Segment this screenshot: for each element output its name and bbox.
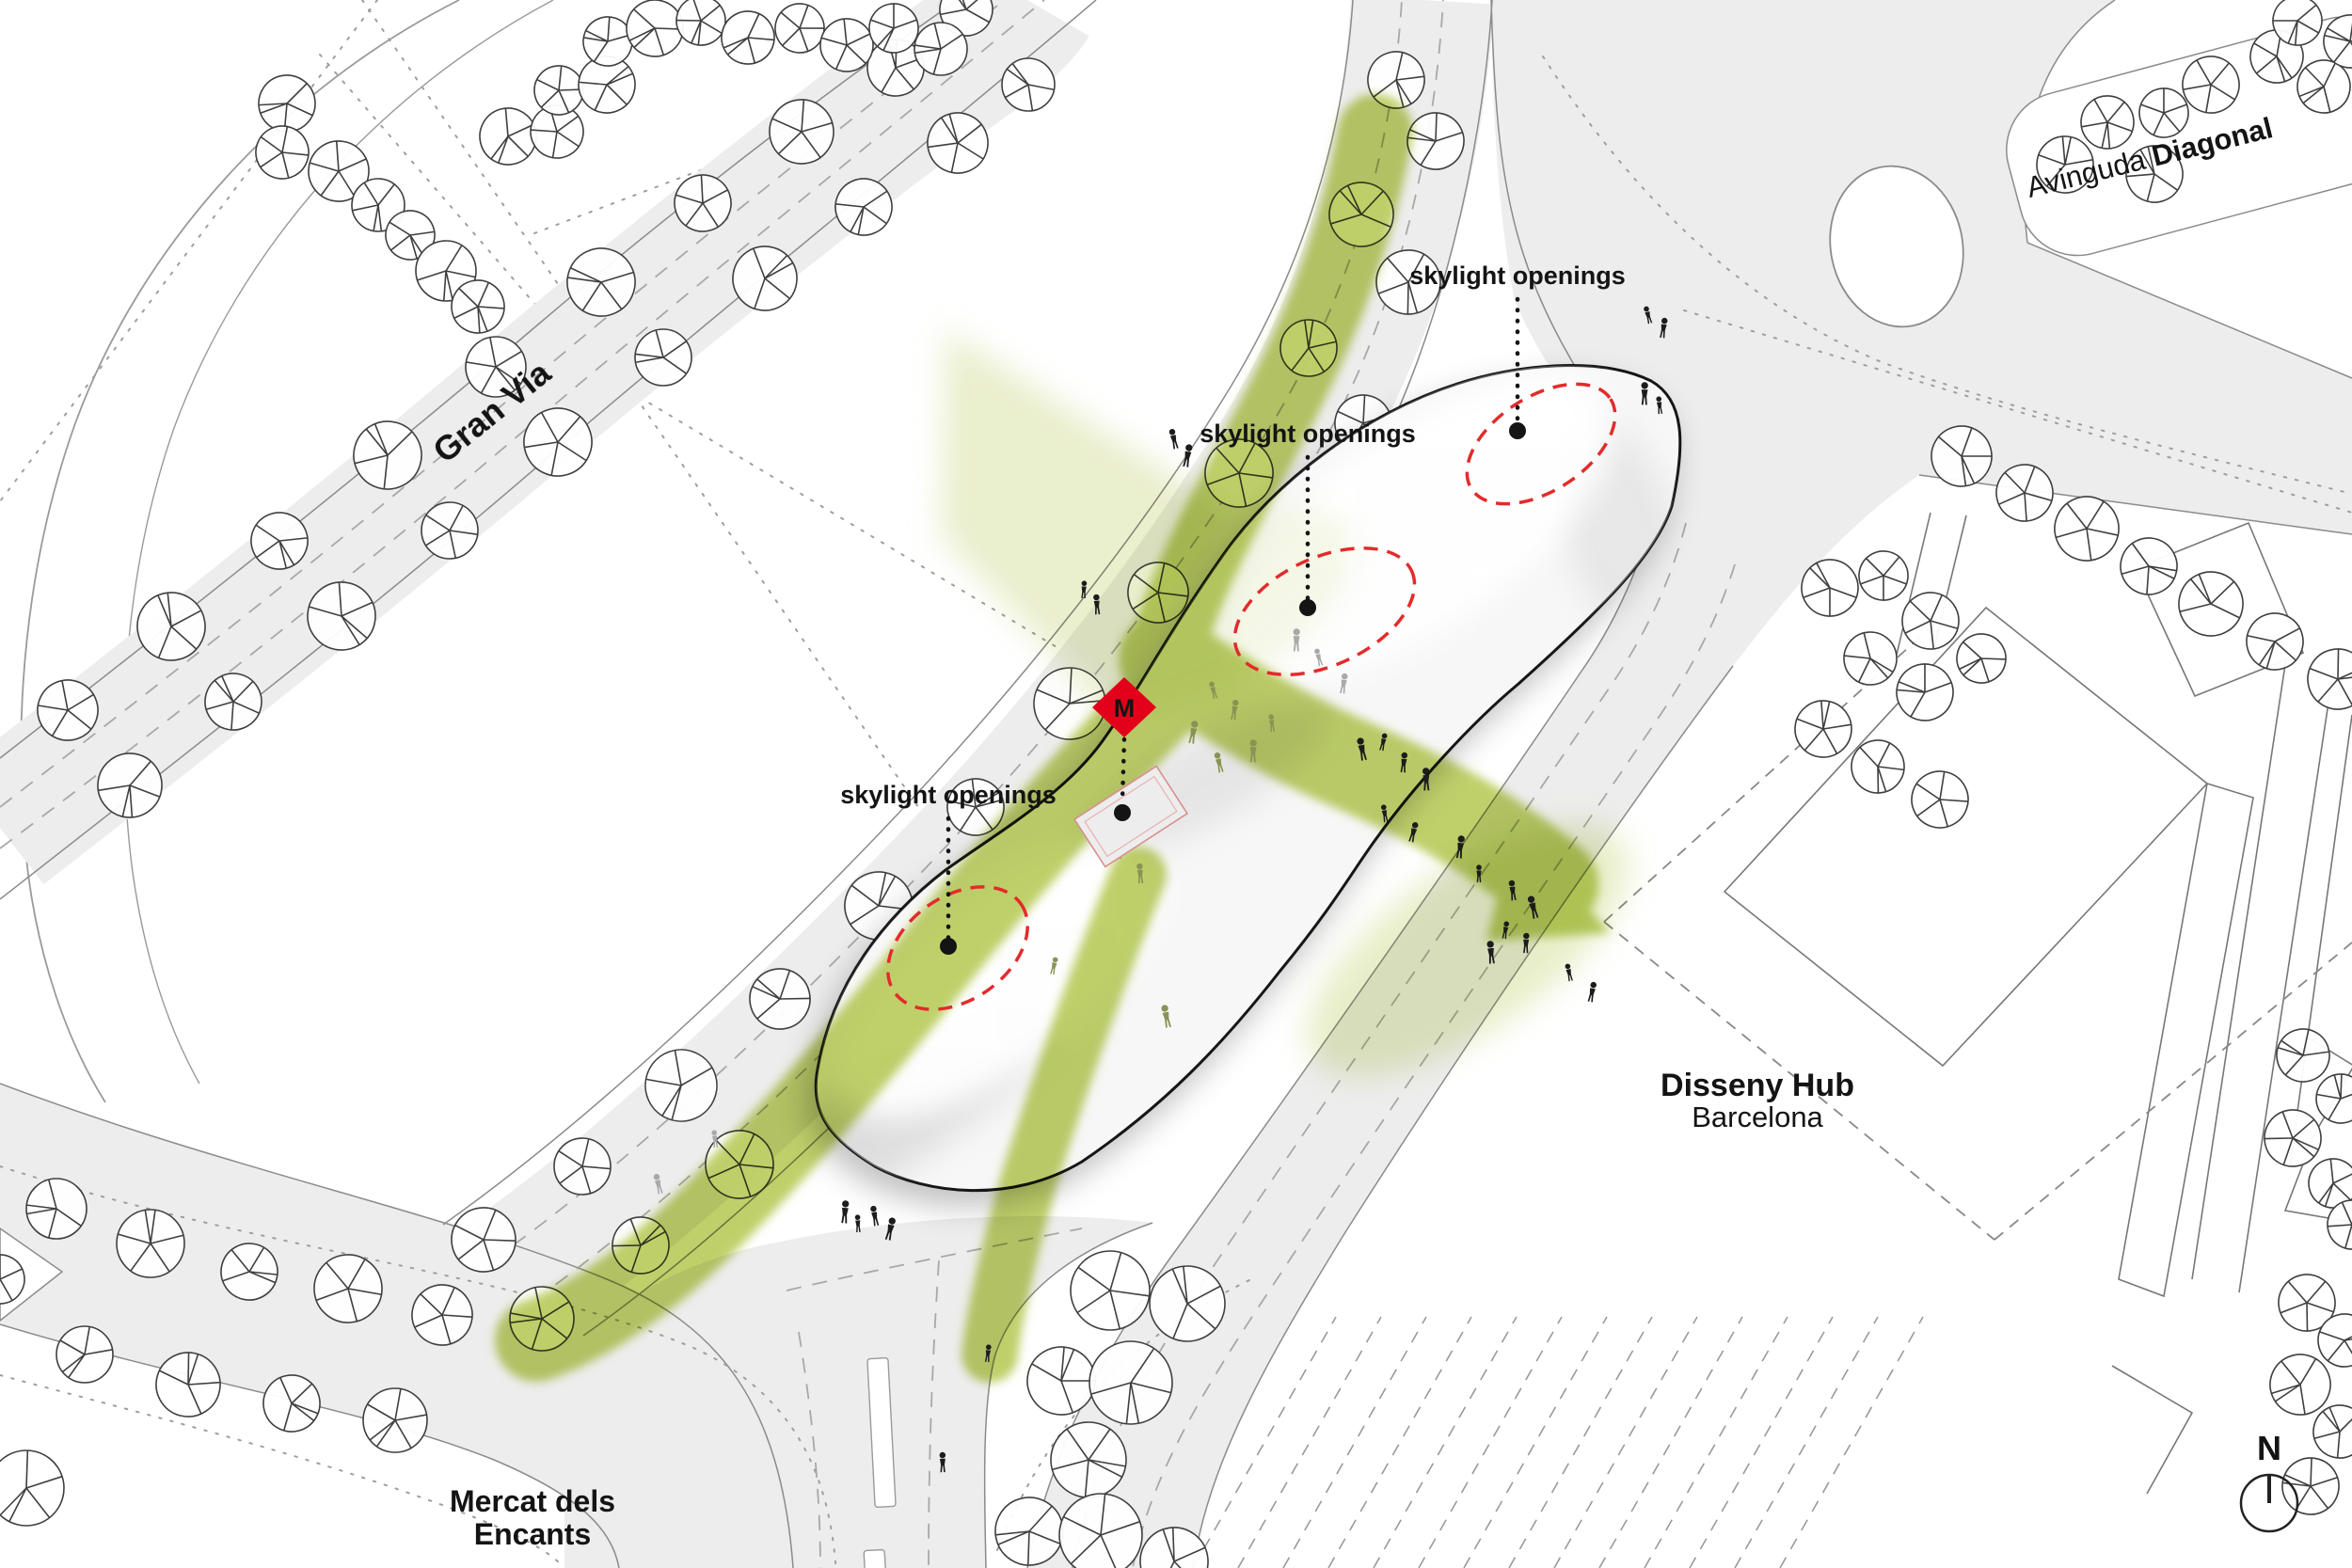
person-icon	[841, 1200, 850, 1224]
tree-icon	[2260, 1105, 2326, 1171]
tree-icon	[771, 0, 828, 56]
hatch-line	[1509, 1317, 1652, 1568]
label-mercat-1: Mercat dels	[450, 1484, 615, 1518]
tree-icon	[1855, 547, 1912, 604]
tree-icon	[363, 1388, 427, 1452]
metro-leader-dot	[1114, 804, 1131, 821]
skylight-label: skylight openings	[1200, 420, 1416, 448]
skylight-leader-dot	[1509, 422, 1526, 439]
tree-icon	[56, 1326, 113, 1383]
tree-icon	[1842, 630, 1899, 687]
tree-icon	[2296, 638, 2352, 721]
skylight-leader-dot	[1299, 599, 1316, 616]
person-icon	[870, 1205, 880, 1226]
skylight-label: skylight openings	[1409, 261, 1626, 290]
metro-leader-line	[1122, 739, 1124, 801]
person-icon	[1183, 444, 1193, 467]
label-disseny-barcelona: Barcelona	[1692, 1101, 1823, 1133]
site-plan-canvas: M skylight openings skylight openings sk…	[0, 0, 2352, 1568]
hatch-line	[1328, 1317, 1471, 1568]
skylight-label: skylight openings	[840, 781, 1057, 809]
parcel-dotted-line	[0, 0, 377, 501]
hatch-line	[1554, 1317, 1697, 1568]
tree-icon	[247, 118, 317, 187]
hatch-line	[1419, 1317, 1562, 1568]
skylight-leader-dot	[940, 938, 957, 955]
hatch-line	[1599, 1317, 1742, 1568]
tree-icon	[1002, 58, 1056, 112]
hatch-line	[1283, 1317, 1426, 1568]
hatch-line	[1374, 1317, 1517, 1568]
person-icon	[1587, 981, 1597, 1002]
metro-icon-letter: M	[1114, 694, 1136, 722]
north-label: N	[2257, 1429, 2281, 1467]
label-mercat-2: Encants	[474, 1517, 591, 1551]
site-plan: M skylight openings skylight openings sk…	[0, 0, 2352, 1568]
building-outline	[2119, 784, 2253, 1296]
tree-icon	[421, 501, 479, 560]
hatch-line	[1780, 1317, 1923, 1568]
hatch-line	[1735, 1317, 1878, 1568]
label-disseny-hub: Disseny Hub	[1661, 1068, 1854, 1103]
hatch-line	[1690, 1317, 1833, 1568]
lane-marking	[864, 1549, 888, 1568]
track-hatching	[1193, 1317, 1923, 1568]
person-icon	[1168, 428, 1179, 449]
building-line	[2112, 1366, 2192, 1494]
tree-icon	[0, 1446, 69, 1530]
hatch-line	[1464, 1317, 1607, 1568]
hatch-line	[1645, 1317, 1788, 1568]
tree-icon	[2272, 1448, 2348, 1524]
